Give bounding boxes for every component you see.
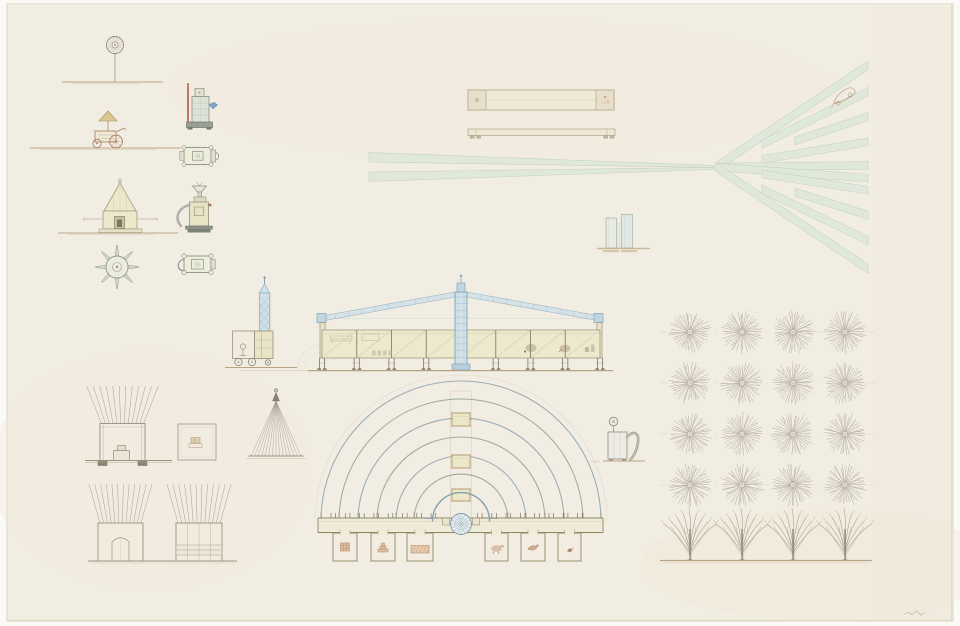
bridge-plan [468,90,614,110]
grinder-machine-plan [178,254,215,275]
architectural-drawing-sheet [0,0,960,626]
espresso-machine-plan [180,146,219,167]
wheel-plan [96,246,139,289]
scanned-drawing-stage [0,0,960,626]
